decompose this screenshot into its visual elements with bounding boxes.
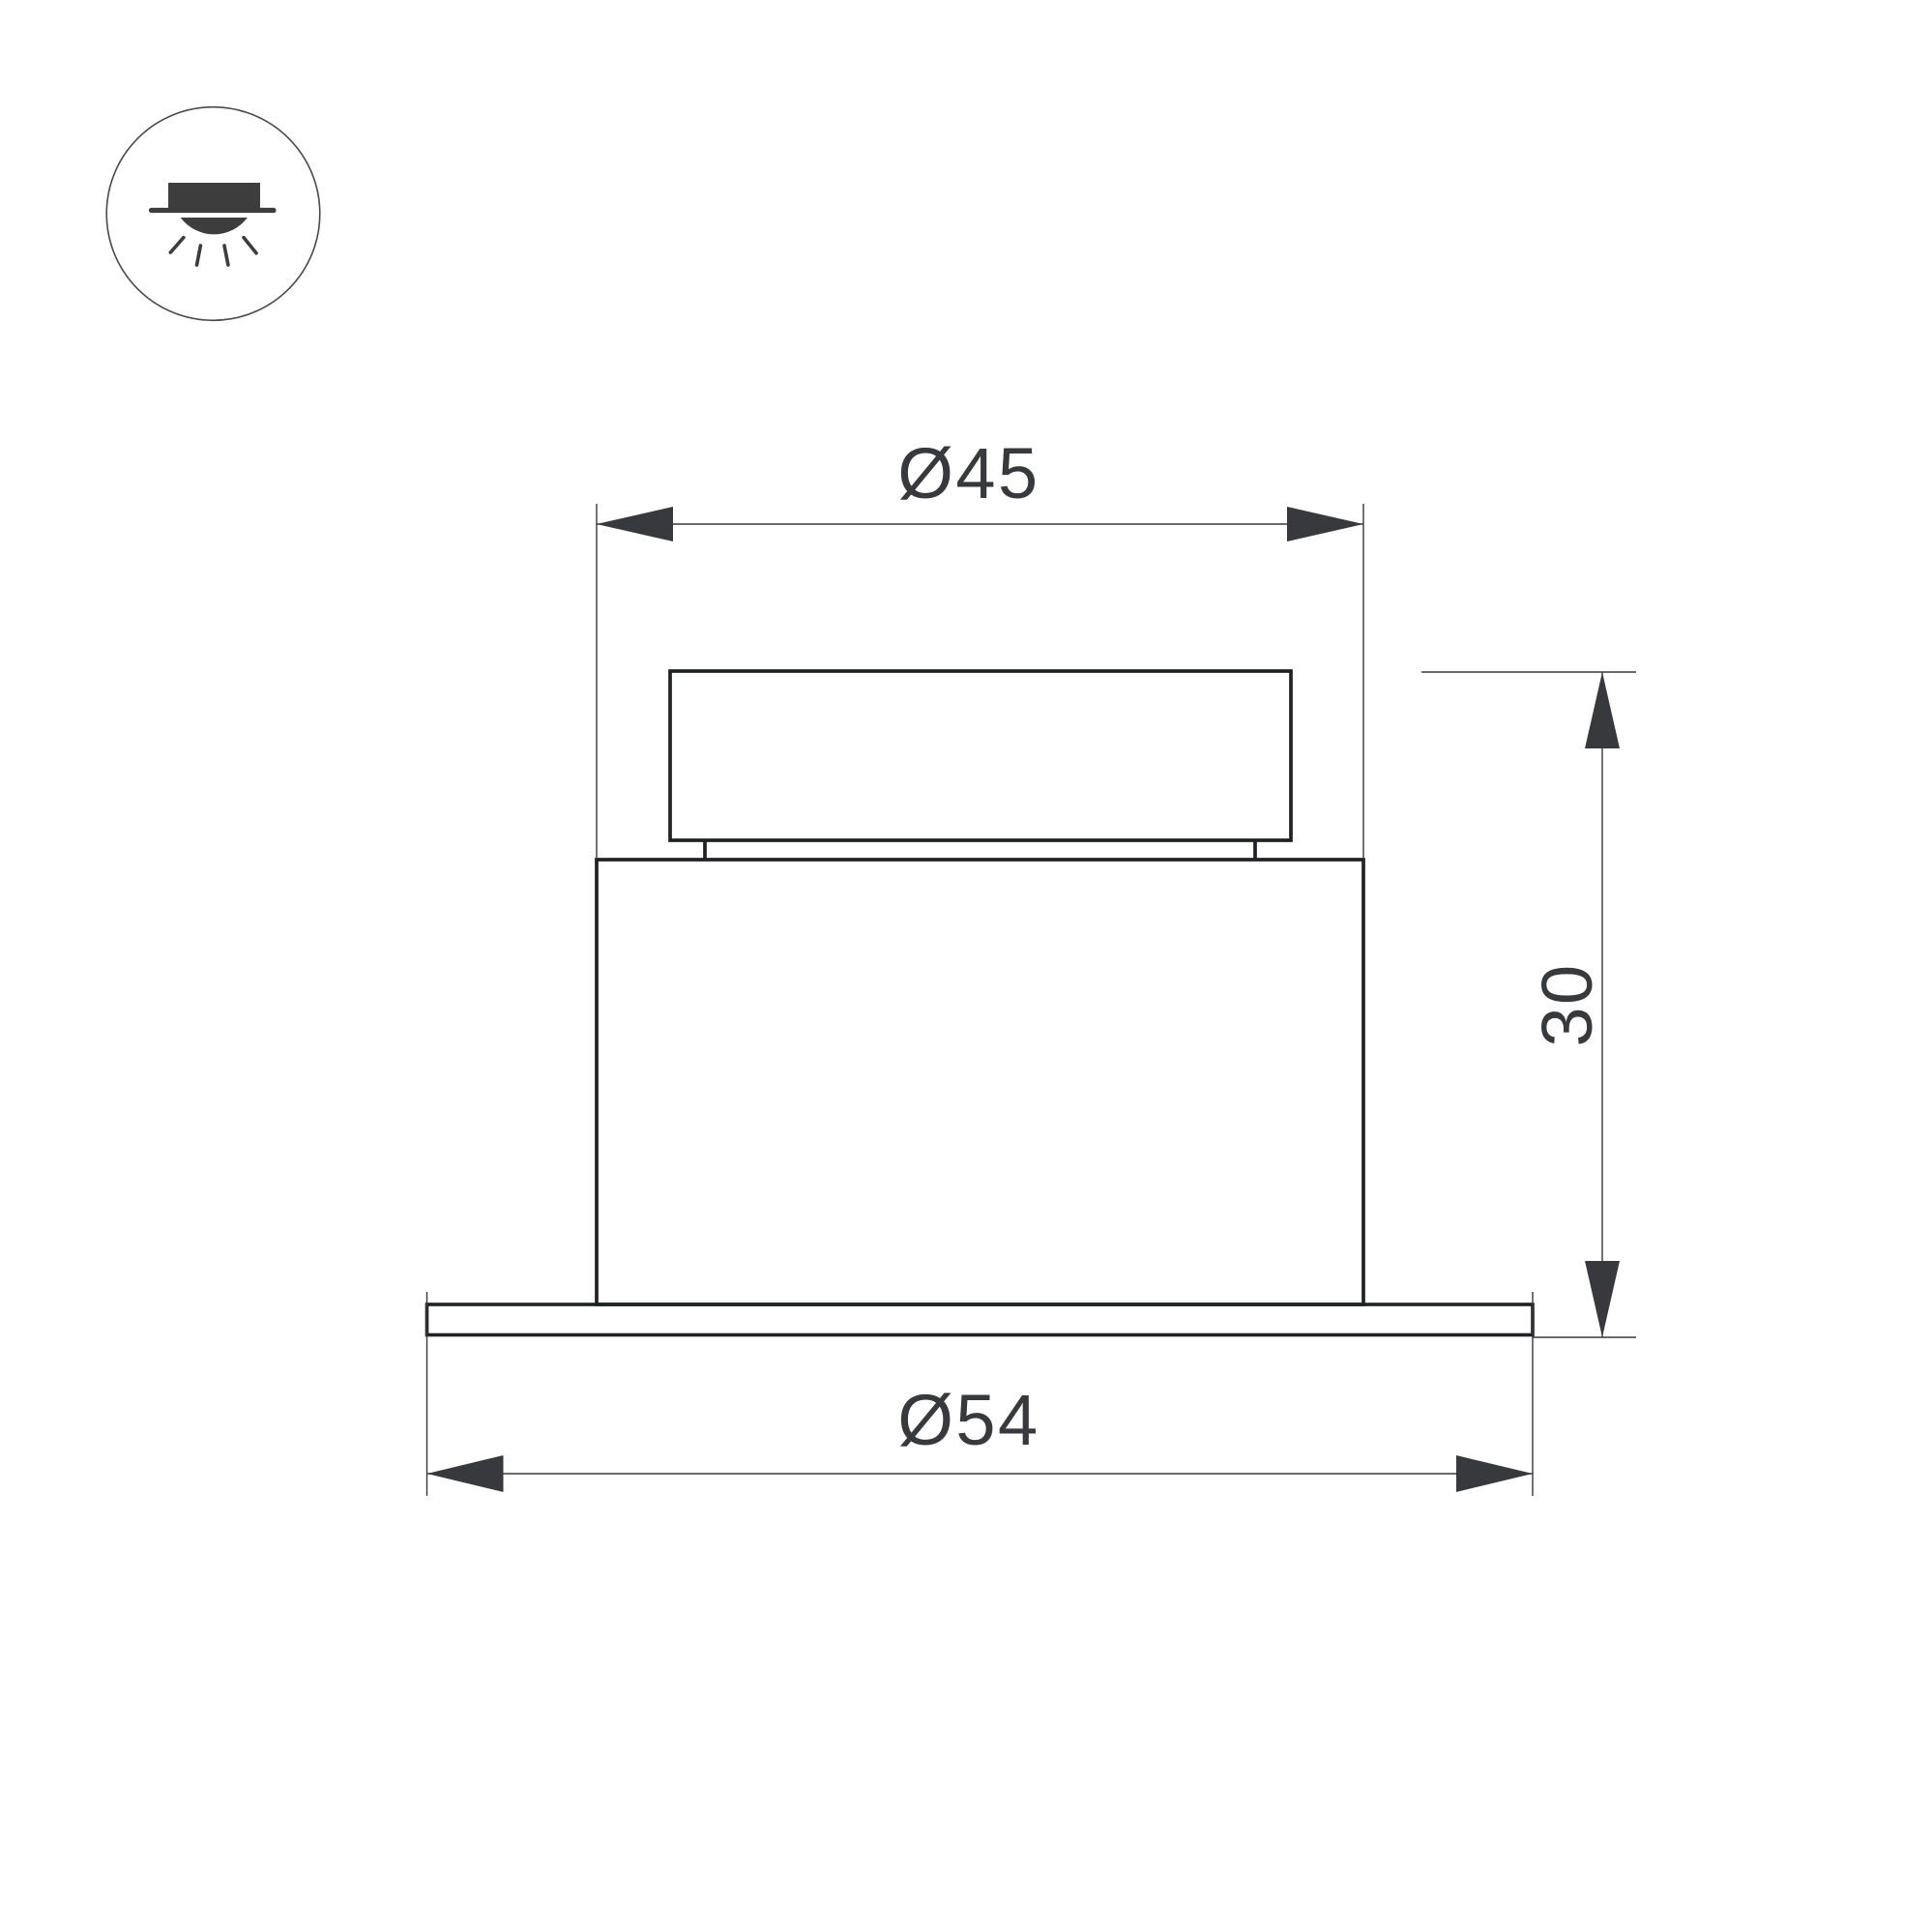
svg-text:Ø54: Ø54 <box>897 1380 1039 1460</box>
svg-text:30: 30 <box>1527 962 1607 1046</box>
svg-text:Ø45: Ø45 <box>897 433 1039 513</box>
